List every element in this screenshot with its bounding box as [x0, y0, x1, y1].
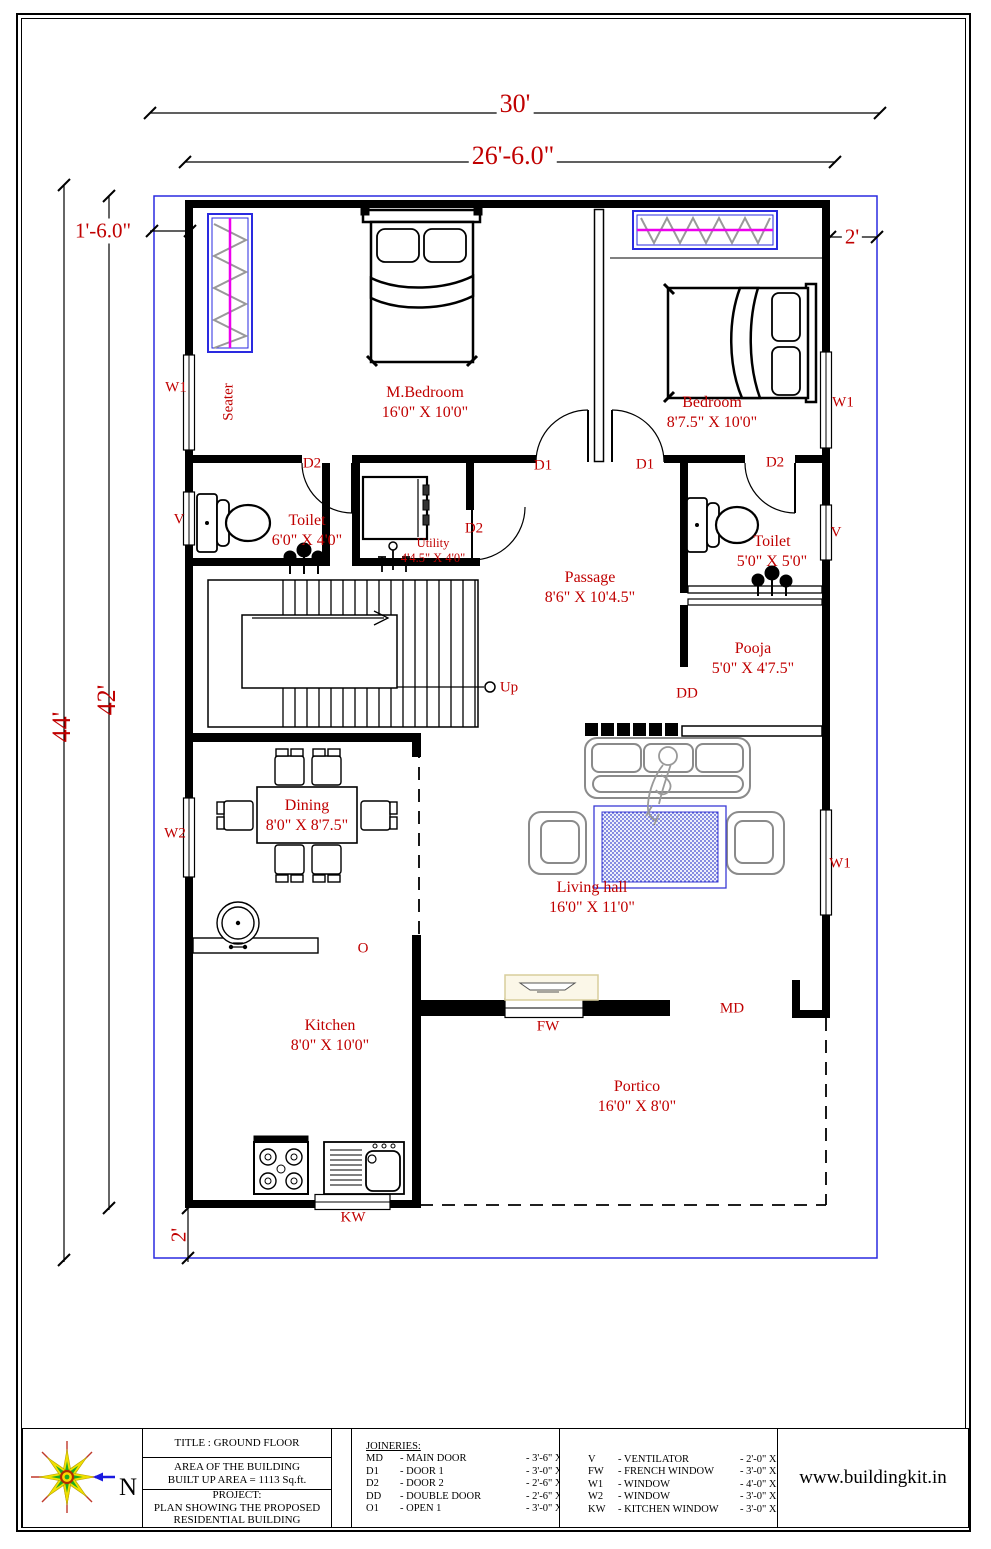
kitchen-sink-icon: [324, 1142, 404, 1194]
mark-d2-utility: D2: [465, 521, 483, 538]
wash-basin-icon: [193, 902, 318, 953]
mark-dd: DD: [676, 686, 698, 703]
titleblock-website-cell: www.buildingkit.in: [777, 1428, 969, 1528]
stove-icon: [254, 1136, 308, 1194]
mark-o: O: [358, 941, 369, 958]
website-text: www.buildingkit.in: [799, 1467, 947, 1489]
mark-v-left: V: [174, 512, 185, 529]
room-label-toilet-right: Toilet5'0" X 5'0": [737, 532, 807, 572]
window-row: W1- WINDOW- 4'-0" X 4'-0": [588, 1479, 799, 1491]
dim-inner-height: 42': [92, 685, 122, 716]
ventilator-left: [184, 492, 195, 545]
room-label-mbedroom: M.Bedroom16'0" X 10'0": [382, 383, 468, 423]
mark-w1-living: W1: [829, 856, 851, 873]
door-d1-mbedroom: [536, 410, 588, 462]
room-label-kitchen: Kitchen8'0" X 10'0": [291, 1016, 369, 1056]
mark-w2: W2: [164, 826, 186, 843]
dim-plot-width: 30': [497, 89, 534, 119]
joinery-row: DD- DOUBLE DOOR- 2'-6" X 7'-0": [366, 1491, 585, 1503]
mark-v-right: V: [831, 525, 842, 542]
window-w1-bedroom: [821, 352, 832, 448]
up-marker-icon: [485, 682, 495, 692]
window-row: V- VENTILATOR- 2'-0" X 2'-0": [588, 1454, 799, 1466]
area-line1: AREA OF THE BUILDING: [174, 1461, 300, 1474]
room-label-pooja: Pooja5'0" X 4'7.5": [712, 639, 794, 679]
mark-kw: KW: [341, 1210, 366, 1227]
joinery-row: MD- MAIN DOOR- 3'-6" X 7-0": [366, 1453, 585, 1465]
mark-fw: FW: [537, 1019, 560, 1036]
project-label: PROJECT:: [213, 1489, 262, 1502]
project-line1: PLAN SHOWING THE PROPOSED: [154, 1502, 320, 1515]
double-bed-icon: [361, 207, 482, 366]
dim-building-width: 26'-6.0": [469, 141, 557, 171]
mark-seater: Seater: [221, 383, 238, 420]
joinery-row: O1- OPEN 1- 3'-0" X 7-0": [366, 1503, 585, 1515]
mark-w1-left: W1: [165, 380, 187, 397]
washing-machine-icon: [363, 477, 429, 539]
staircase: [208, 580, 495, 727]
mark-d1-bedroom: D1: [636, 457, 654, 474]
north-arrow-icon: [93, 1473, 115, 1482]
area-line2: BUILT UP AREA = 1113 Sq.ft.: [168, 1474, 307, 1487]
window-w1-seater: [184, 355, 195, 450]
seater-icon: [208, 214, 252, 352]
titleblock-compass-cell: N: [22, 1428, 144, 1528]
tv-cabinet-icon: [585, 723, 678, 736]
room-label-dining: Dining8'0" X 8'7.5": [266, 796, 348, 836]
room-label-toilet-left: Toilet6'0" X 4'0": [272, 511, 342, 551]
kitchen-window: [315, 1195, 390, 1210]
tv-unit-icon: [505, 975, 598, 1000]
mark-d1-mbedroom: D1: [534, 458, 552, 475]
door-d1-bedroom: [612, 410, 664, 462]
titleblock-spacer-cell: [331, 1428, 353, 1528]
drawing-title: TITLE : GROUND FLOOR: [175, 1437, 300, 1450]
joineries-heading: JOINERIES:: [366, 1441, 585, 1453]
room-label-living: Living hall16'0" X 11'0": [549, 878, 635, 918]
mark-d2-toilet-left: D2: [303, 456, 321, 473]
rug-icon: [594, 806, 726, 888]
wardrobe-icon: [633, 211, 777, 249]
titleblock-windows-cell: V- VENTILATOR- 2'-0" X 2'-0" FW- FRENCH …: [559, 1428, 779, 1528]
single-bed-icon: [664, 284, 816, 402]
room-label-passage: Passage8'6" X 10'4.5": [545, 568, 635, 608]
north-label: N: [119, 1474, 137, 1502]
wc-left-icon: [197, 494, 270, 552]
window-row: FW- FRENCH WINDOW- 3'-0" X 6'-0": [588, 1466, 799, 1478]
floor-plan-sheet: 30' 26'-6.0" 44' 42' 1'-6.0" 2' 2' M.Bed…: [0, 0, 991, 1549]
dim-setback-left: 1'-6.0": [72, 219, 134, 244]
titleblock-joineries-cell: JOINERIES: MD- MAIN DOOR- 3'-6" X 7-0" D…: [351, 1428, 561, 1528]
room-label-utility: Utility4'4.5" X 4'0": [401, 536, 465, 566]
project-line2: RESIDENTIAL BUILDING: [174, 1514, 301, 1527]
dim-setback-bottom: 2': [167, 1228, 192, 1242]
dim-plot-height: 44': [47, 712, 77, 743]
dim-setback-right: 2': [842, 225, 862, 250]
joinery-row: D1- DOOR 1- 3'-0" X 7-0": [366, 1466, 585, 1478]
window-row: W2- WINDOW- 3'-0" X 4'-0": [588, 1491, 799, 1503]
titleblock-info-cell: TITLE : GROUND FLOOR AREA OF THE BUILDIN…: [142, 1428, 332, 1528]
window-row: KW- KITCHEN WINDOW- 3'-0" X 3'-0": [588, 1504, 799, 1516]
french-window: [505, 999, 583, 1018]
joinery-row: D2- DOOR 2- 2'-6" X 7-0": [366, 1478, 585, 1490]
mark-d2-toilet-right: D2: [766, 455, 784, 472]
mark-w1-bedroom: W1: [832, 395, 854, 412]
room-label-portico: Portico16'0" X 8'0": [598, 1077, 676, 1117]
mark-up: Up: [500, 680, 518, 697]
room-label-bedroom: Bedroom8'7.5" X 10'0": [667, 393, 757, 433]
mark-md: MD: [720, 1001, 744, 1018]
